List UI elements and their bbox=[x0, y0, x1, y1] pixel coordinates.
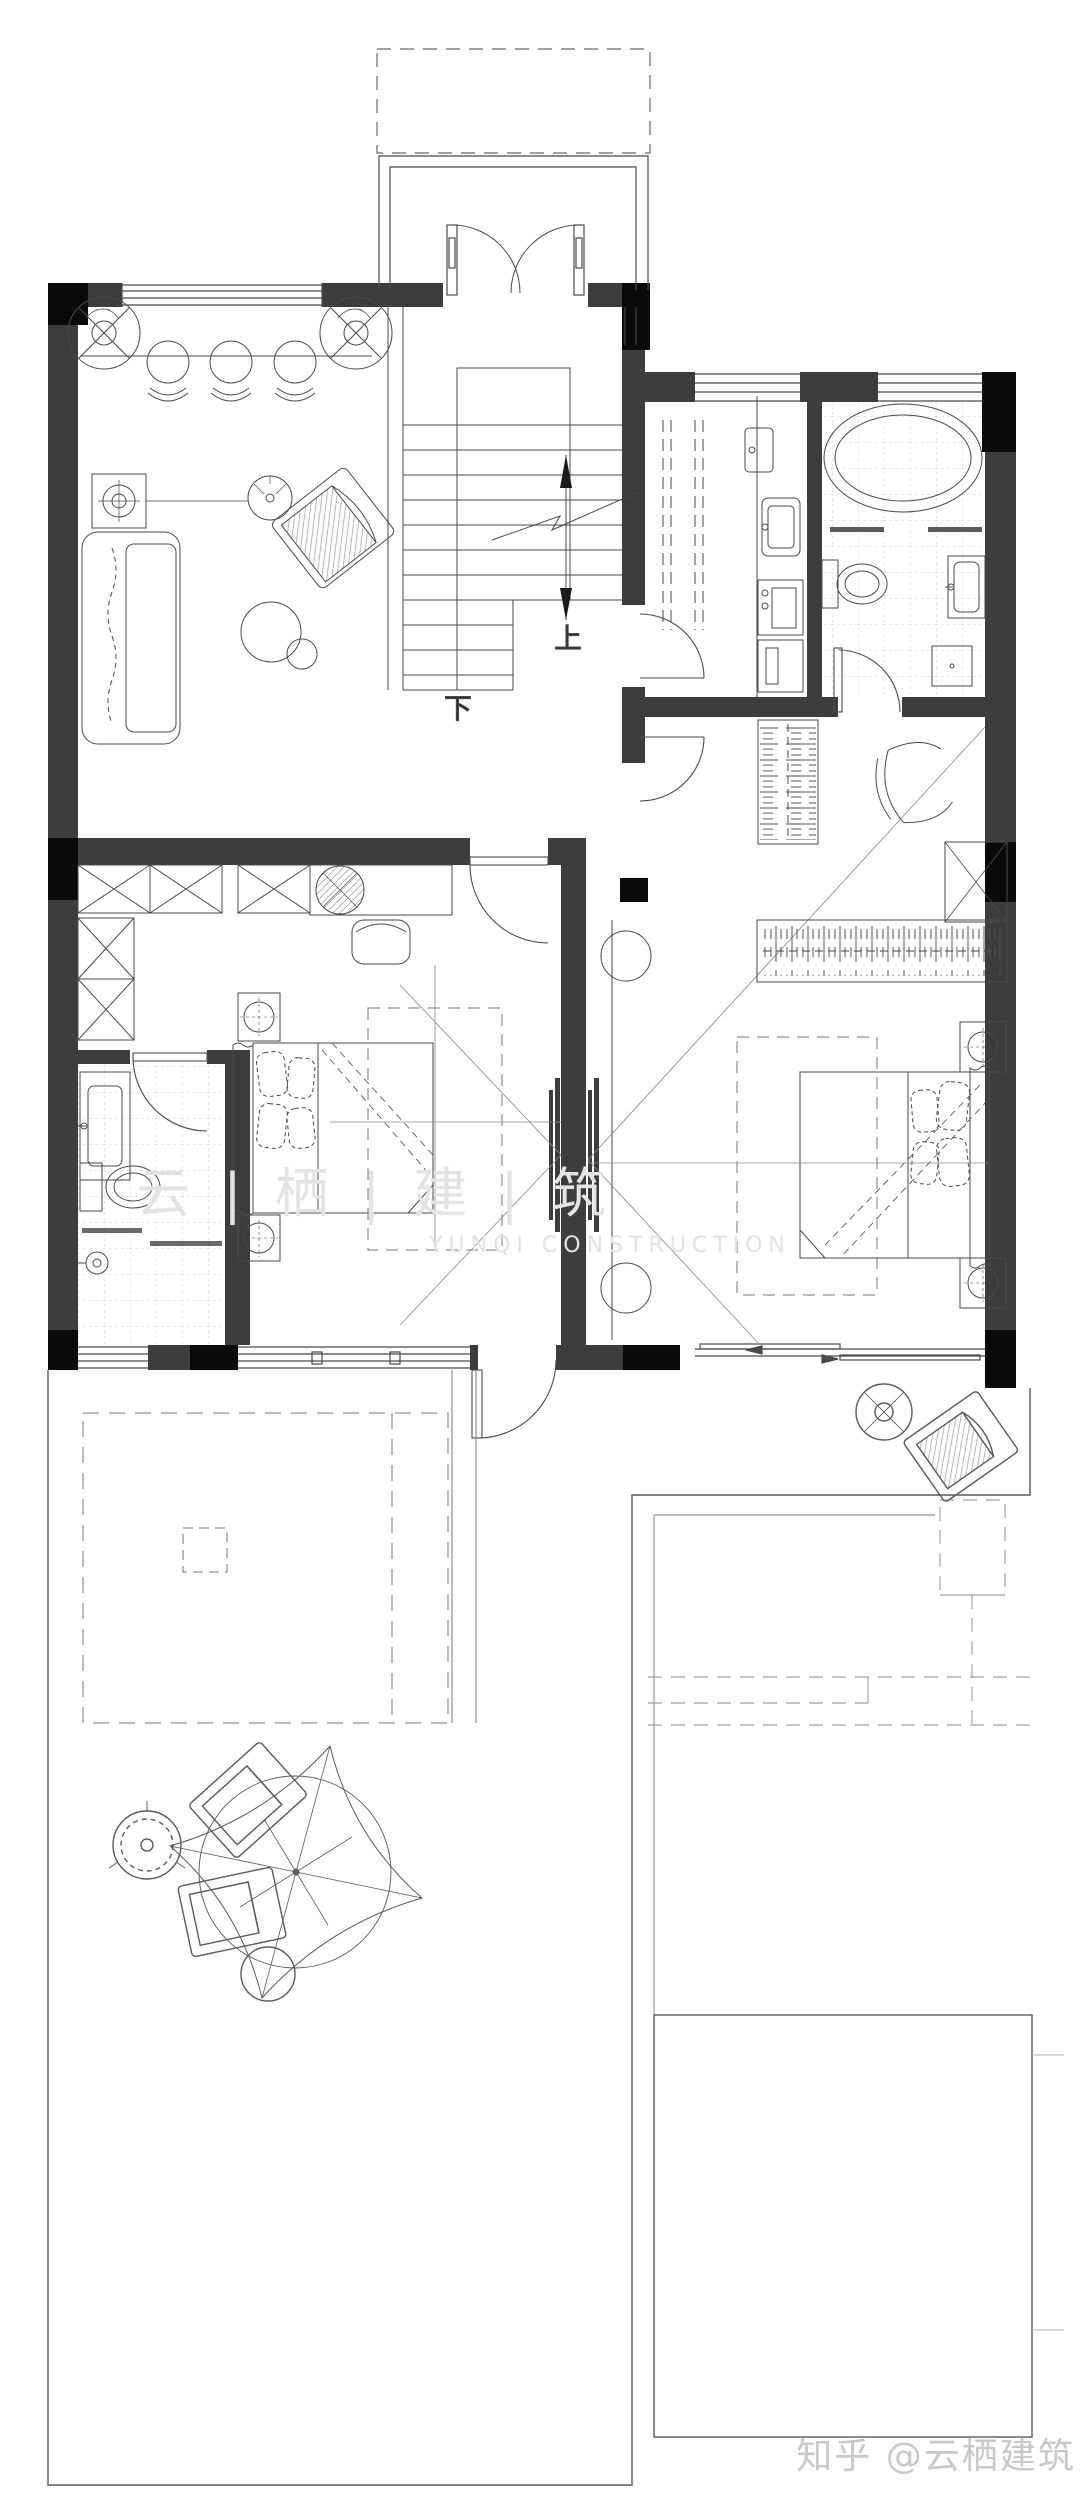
porch-roof-dashed bbox=[377, 49, 650, 153]
corner-left-bottom bbox=[48, 1330, 78, 1370]
terrace bbox=[48, 1370, 1064, 2485]
stair-down-label: 下 bbox=[444, 692, 472, 725]
wall-mid-b bbox=[902, 697, 985, 717]
family-room bbox=[68, 297, 396, 744]
laundry-shelves-dashed bbox=[663, 420, 703, 630]
porch-wall-inner bbox=[390, 167, 636, 290]
shower-screen-b bbox=[928, 527, 982, 532]
outdoor-lounge-chair bbox=[903, 1390, 1019, 1502]
window-family-room bbox=[122, 283, 322, 307]
corner-tv-top bbox=[620, 878, 648, 902]
steps-dashed bbox=[648, 1500, 1030, 1725]
staircase: 上 下 bbox=[388, 307, 638, 725]
outdoor-plant-icon bbox=[856, 1384, 912, 1440]
dressing-area bbox=[757, 720, 1007, 982]
wall-bottom-b bbox=[470, 1345, 478, 1370]
floor-lamp-icon bbox=[601, 1263, 651, 1313]
desk-chair bbox=[352, 920, 410, 964]
watermark-center-en: YUNQI CONSTRUCTION bbox=[428, 1233, 791, 1258]
stair-break-line bbox=[492, 492, 638, 540]
door-dressing bbox=[640, 737, 704, 801]
patio-lounge-chair bbox=[178, 1867, 287, 1957]
corner-right-bottom bbox=[985, 1330, 1016, 1388]
stair-hall-left-wall bbox=[388, 307, 403, 690]
floor-plan-page: 上 下 bbox=[0, 0, 1080, 2508]
pergola-dashed bbox=[83, 1370, 476, 1723]
shower-bench-a bbox=[82, 1228, 142, 1233]
corner-bottom-a bbox=[190, 1345, 238, 1370]
pergola-column bbox=[183, 1528, 227, 1572]
stair-landing bbox=[457, 368, 570, 425]
washing-machine bbox=[758, 580, 803, 635]
watermark-bottom-right: 知乎 @云栖建筑 bbox=[796, 2436, 1075, 2477]
shower-screen-a bbox=[830, 527, 884, 532]
wall-left bbox=[48, 283, 78, 1370]
sliding-door bbox=[695, 1344, 985, 1363]
entry-double-door bbox=[447, 225, 584, 295]
wall-mid-a bbox=[645, 697, 838, 717]
lower-roof-block bbox=[654, 2015, 1032, 2437]
stair-up-label: 上 bbox=[554, 622, 582, 655]
wall-stair-right bbox=[622, 350, 645, 605]
laundry-sink bbox=[762, 498, 800, 556]
wardrobe-hanging bbox=[757, 920, 1007, 982]
pillows bbox=[255, 1050, 316, 1149]
floor-lamp-icon bbox=[601, 931, 651, 981]
pillows bbox=[910, 1080, 971, 1187]
patio-lounge-chair bbox=[188, 1741, 308, 1859]
patio-plant-icon bbox=[109, 1801, 185, 1879]
lounge-chair bbox=[270, 466, 396, 590]
wall-bottom-c bbox=[556, 1345, 623, 1370]
floor-plan-drawing: 上 下 bbox=[0, 0, 1080, 2508]
terrace-outline bbox=[48, 1370, 1030, 2485]
coffee-table-large bbox=[241, 602, 301, 662]
patio-umbrella bbox=[170, 1746, 422, 1998]
master-bathroom bbox=[822, 402, 985, 697]
terrace-ticks bbox=[1032, 2055, 1064, 2330]
dryer bbox=[758, 640, 803, 692]
sight-lines bbox=[330, 965, 561, 1325]
door-stair-hall bbox=[640, 614, 704, 678]
wall-laundry-bath bbox=[807, 396, 822, 697]
wall-top-entry-right bbox=[588, 283, 622, 307]
door-terrace bbox=[472, 1360, 556, 1438]
laundry-basin bbox=[745, 428, 773, 472]
watermark-center-cn: 云 | 栖 | 建 | 筑 bbox=[136, 1162, 614, 1225]
porch-wall-outer bbox=[379, 156, 648, 290]
corner-bottom-b bbox=[623, 1345, 680, 1370]
sliding-arrow-left-icon bbox=[746, 1346, 762, 1354]
entry-porch bbox=[377, 49, 650, 295]
bath-tile-floor bbox=[822, 402, 985, 697]
round-side-table bbox=[248, 476, 292, 520]
wall-closet-row bbox=[48, 838, 470, 865]
wall-bottom-a bbox=[148, 1345, 190, 1370]
corner-left-mid bbox=[48, 838, 78, 900]
potted-plant-icon bbox=[320, 297, 392, 369]
armchair bbox=[869, 737, 955, 829]
stair-direction-arrow bbox=[492, 455, 638, 620]
window-laundry bbox=[695, 374, 800, 401]
potted-plant-icon bbox=[68, 297, 140, 369]
nightstand bbox=[238, 993, 280, 1041]
clothes-rack-vertical bbox=[758, 720, 818, 844]
door-left-bedroom bbox=[470, 857, 548, 943]
wall-top-left-b bbox=[322, 283, 443, 307]
terrace-inner-line bbox=[654, 1515, 935, 2437]
laundry-room bbox=[663, 396, 803, 697]
window-left-bath bbox=[78, 1347, 148, 1368]
side-table bbox=[92, 474, 248, 528]
left-bedroom bbox=[233, 965, 561, 1325]
patio-stool bbox=[241, 1947, 295, 2001]
wardrobe-cabinet bbox=[78, 865, 310, 1040]
shower-bench-b bbox=[150, 1241, 222, 1246]
stool bbox=[274, 341, 316, 401]
window-master-bath bbox=[878, 374, 982, 401]
wall-righttop-a bbox=[645, 372, 695, 402]
desk bbox=[310, 865, 452, 915]
stool bbox=[210, 341, 252, 401]
stool bbox=[147, 341, 189, 401]
closet-area bbox=[78, 865, 452, 1040]
corner-right-top bbox=[982, 372, 1016, 452]
bed bbox=[800, 1066, 990, 1268]
wall-stair-stub bbox=[622, 687, 645, 763]
wall-tv bbox=[561, 845, 586, 1370]
sofa bbox=[82, 532, 180, 744]
wall-bath-top-a bbox=[78, 1050, 130, 1064]
window-left-bedroom bbox=[238, 1347, 470, 1368]
